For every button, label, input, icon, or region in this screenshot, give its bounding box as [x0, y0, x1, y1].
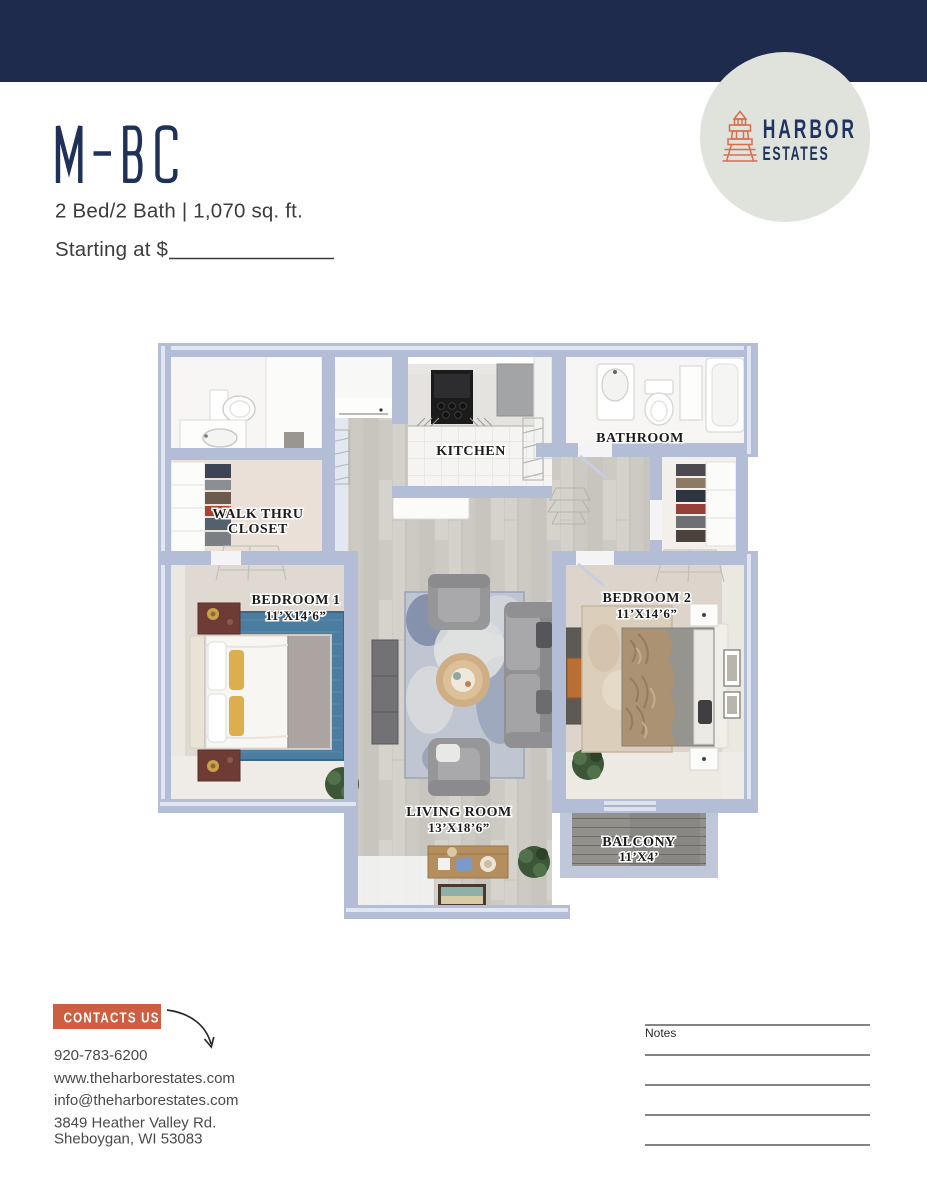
svg-text:www.theharborestates.com: www.theharborestates.com: [53, 1070, 235, 1087]
svg-text:11’X4’: 11’X4’: [619, 849, 659, 864]
svg-text:3849 Heather Valley Rd.: 3849 Heather Valley Rd.: [54, 1115, 216, 1132]
svg-text:11’X14’6”: 11’X14’6”: [617, 606, 678, 621]
svg-text:BEDROOM 2: BEDROOM 2: [603, 591, 692, 606]
svg-text:BEDROOM 1: BEDROOM 1: [252, 593, 341, 608]
svg-text:2 Bed/2 Bath | 1,070 sq. ft.: 2 Bed/2 Bath | 1,070 sq. ft.: [55, 200, 303, 223]
svg-text:Starting at $: Starting at $: [55, 238, 169, 261]
svg-text:BALCONY: BALCONY: [602, 835, 676, 850]
svg-text:Sheboygan, WI 53083: Sheboygan, WI 53083: [54, 1131, 202, 1148]
svg-text:info@theharborestates.com: info@theharborestates.com: [54, 1092, 239, 1109]
svg-text:920-783-6200: 920-783-6200: [54, 1047, 147, 1064]
svg-text:LIVING ROOM: LIVING ROOM: [406, 805, 511, 820]
svg-text:ESTATES: ESTATES: [762, 143, 829, 164]
svg-text:WALK THRU: WALK THRU: [213, 507, 304, 522]
svg-text:13’X18’6”: 13’X18’6”: [428, 820, 490, 835]
svg-text:Notes: Notes: [645, 1026, 676, 1040]
svg-text:CLOSET: CLOSET: [228, 522, 288, 537]
svg-text:CONTACTS US: CONTACTS US: [64, 1009, 160, 1026]
svg-text:BATHROOM: BATHROOM: [596, 431, 684, 446]
svg-text:11’X14’6”: 11’X14’6”: [266, 608, 327, 623]
svg-text:KITCHEN: KITCHEN: [436, 444, 506, 459]
svg-text:HARBOR: HARBOR: [763, 113, 857, 144]
